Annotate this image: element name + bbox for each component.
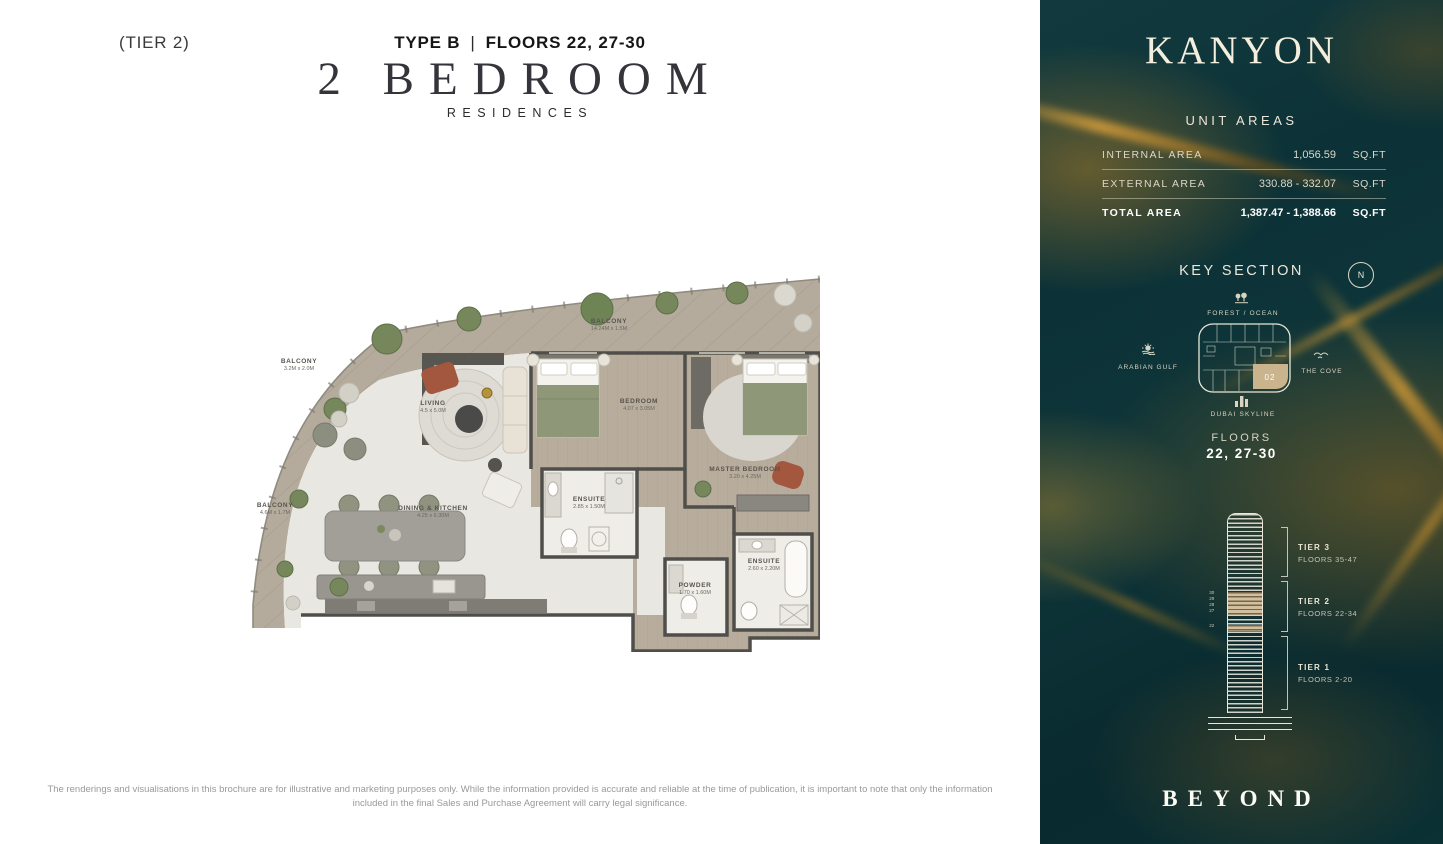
floor-plan: BALCONY 14.24M x 1.5M BALCONY 3.2M x 2.0… — [237, 267, 820, 652]
floors-label: FLOORS 22, 27-30 — [486, 33, 646, 52]
kanyon-logo: KANYON — [1040, 28, 1443, 73]
page-subtitle: RESIDENCES — [0, 106, 1040, 120]
page-title: 2 BEDROOM — [0, 52, 1040, 106]
tier2-label: TIER 2 FLOORS 22-34 — [1298, 597, 1357, 618]
north-compass-icon: N — [1348, 262, 1374, 288]
the-cove-marker: THE COVE — [1292, 346, 1352, 377]
info-panel: KANYON UNIT AREAS INTERNAL AREA 1,056.59… — [1040, 0, 1443, 844]
tower-section-diagram: 30 29 28 27 22 TIER 3 FLOORS 35-47 TIER … — [1185, 505, 1375, 755]
highlight-floors-27-30 — [1228, 592, 1262, 615]
type-label: TYPE B — [394, 33, 460, 52]
floor-number: 27 — [1209, 609, 1214, 614]
unit-number: 02 — [1265, 373, 1276, 382]
key-section-heading: KEY SECTION — [1040, 263, 1443, 279]
tower-body — [1227, 513, 1263, 713]
tier2-bracket — [1281, 581, 1288, 632]
floor-plan-drawing — [237, 267, 820, 652]
arabian-gulf-label: ARABIAN GULF — [1118, 363, 1178, 373]
kitchen-counter — [325, 599, 547, 613]
skyline-icon — [1040, 394, 1443, 407]
podium-base — [1235, 735, 1265, 740]
table-row-total: TOTAL AREA 1,387.47 - 1,388.66 SQ.FT — [1102, 198, 1386, 227]
forest-ocean-icon — [1040, 292, 1443, 304]
disclaimer-text: The renderings and visualisations in thi… — [40, 783, 1000, 811]
type-floors-line: TYPE B|FLOORS 22, 27-30(TIER 2) — [0, 33, 1040, 53]
tier-label: (TIER 2) — [119, 33, 190, 53]
key-plan: 02 — [1197, 320, 1292, 398]
floor-number: 30 — [1209, 591, 1214, 596]
forest-ocean-label: FOREST / OCEAN — [1183, 309, 1303, 319]
hall-floor — [637, 507, 665, 615]
unit-areas-table: INTERNAL AREA 1,056.59 SQ.FT EXTERNAL AR… — [1102, 140, 1386, 227]
the-cove-label: THE COVE — [1292, 367, 1352, 377]
bird-icon — [1313, 349, 1331, 359]
floors-value: 22, 27-30 — [1040, 446, 1443, 461]
skyline-label: DUBAI SKYLINE — [1183, 410, 1303, 420]
podium-line — [1208, 717, 1292, 718]
separator: | — [470, 33, 475, 52]
tier1-bracket — [1281, 636, 1288, 710]
unit-areas-heading: UNIT AREAS — [1040, 113, 1443, 128]
floor-number: 28 — [1209, 603, 1214, 608]
floor-number: 22 — [1209, 624, 1214, 629]
beyond-logo: BEYOND — [1040, 786, 1443, 812]
podium-line — [1208, 723, 1292, 724]
table-row: EXTERNAL AREA 330.88 - 332.07 SQ.FT — [1102, 169, 1386, 198]
tier3-bracket — [1281, 527, 1288, 577]
arabian-gulf-marker: ARABIAN GULF — [1118, 342, 1178, 373]
tier1-label: TIER 1 FLOORS 2-20 — [1298, 663, 1353, 684]
brochure-page: TYPE B|FLOORS 22, 27-30(TIER 2) 2 BEDROO… — [0, 0, 1443, 844]
floors-label: FLOORS — [1040, 432, 1443, 444]
sun-waves-icon — [1140, 343, 1156, 355]
tier3-label: TIER 3 FLOORS 35-47 — [1298, 543, 1357, 564]
podium-line — [1208, 729, 1292, 730]
floor-number: 29 — [1209, 597, 1214, 602]
highlight-floor-22 — [1228, 625, 1262, 631]
table-row: INTERNAL AREA 1,056.59 SQ.FT — [1102, 140, 1386, 169]
